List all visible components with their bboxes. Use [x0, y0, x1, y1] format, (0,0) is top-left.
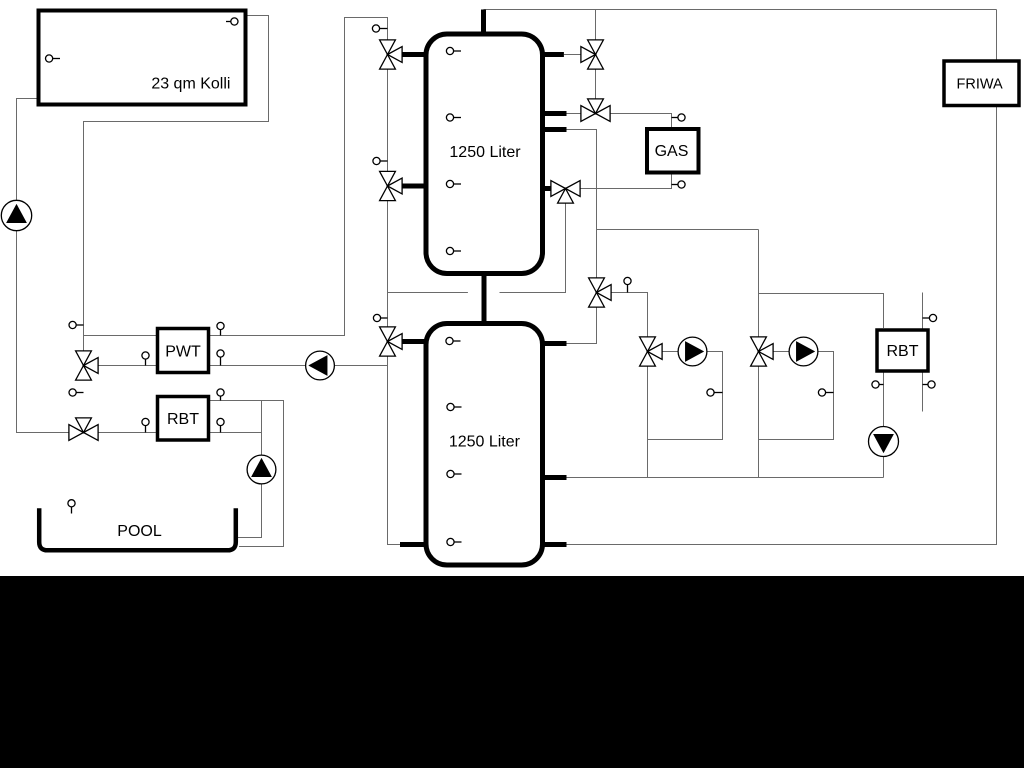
svg-text:1250 Liter: 1250 Liter: [449, 144, 521, 161]
svg-text:POOL: POOL: [117, 523, 162, 540]
svg-text:RBT: RBT: [167, 411, 199, 428]
svg-text:RBT: RBT: [887, 343, 919, 360]
svg-text:GAS: GAS: [655, 143, 689, 160]
svg-text:PWT: PWT: [165, 343, 201, 360]
svg-text:FRIWA: FRIWA: [957, 77, 1004, 93]
svg-text:1250 Liter: 1250 Liter: [449, 434, 521, 451]
svg-text:23 qm Kolli: 23 qm Kolli: [151, 75, 230, 92]
